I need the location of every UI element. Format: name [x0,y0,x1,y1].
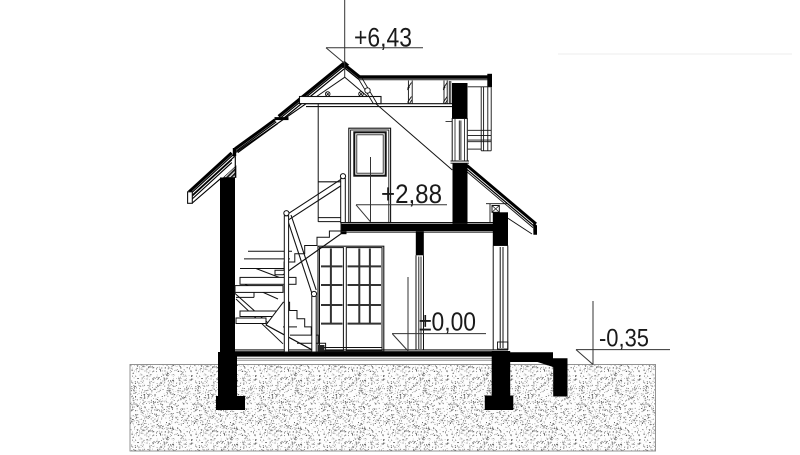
svg-text:±0,00: ±0,00 [419,307,476,337]
svg-text:-0,35: -0,35 [599,325,649,353]
